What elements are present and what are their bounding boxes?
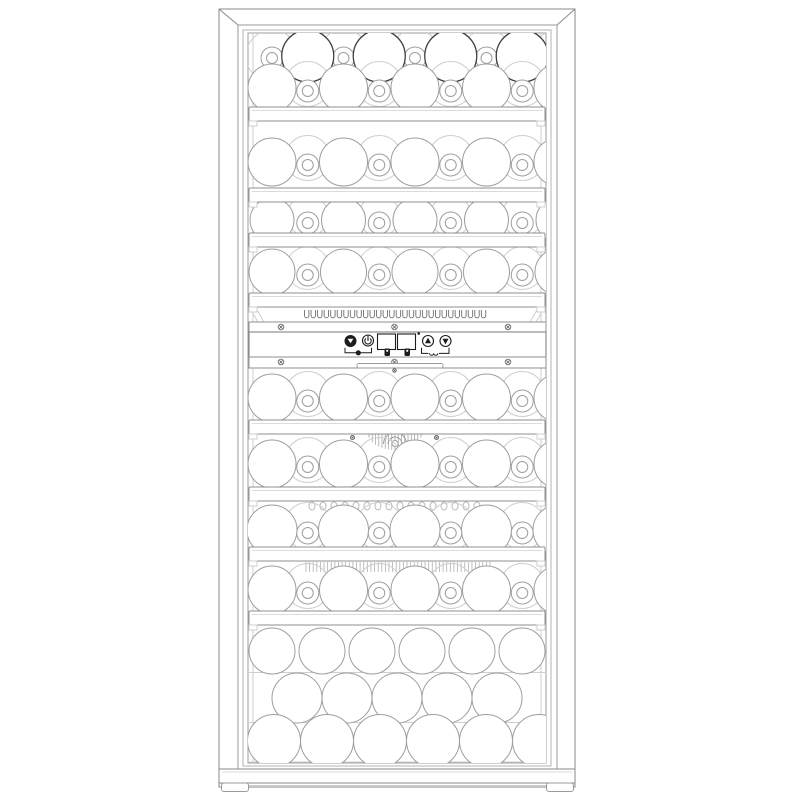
wine-cooler-drawing (0, 0, 800, 800)
led-dot (356, 350, 361, 355)
bottle-icon (405, 349, 411, 357)
indicator-dot (417, 332, 420, 335)
control-panel (249, 322, 546, 372)
lower-zone-display (398, 334, 416, 350)
bottle-icon (385, 349, 391, 357)
recessed-handle (357, 364, 443, 369)
wine-cooler-diagram (0, 0, 800, 800)
right-foot (547, 783, 574, 792)
temp-down-button (440, 336, 451, 347)
left-foot (222, 783, 249, 792)
power-button (363, 335, 374, 346)
temp-up-button (423, 336, 434, 347)
upper-zone-display (378, 334, 396, 350)
light-button (345, 336, 356, 347)
